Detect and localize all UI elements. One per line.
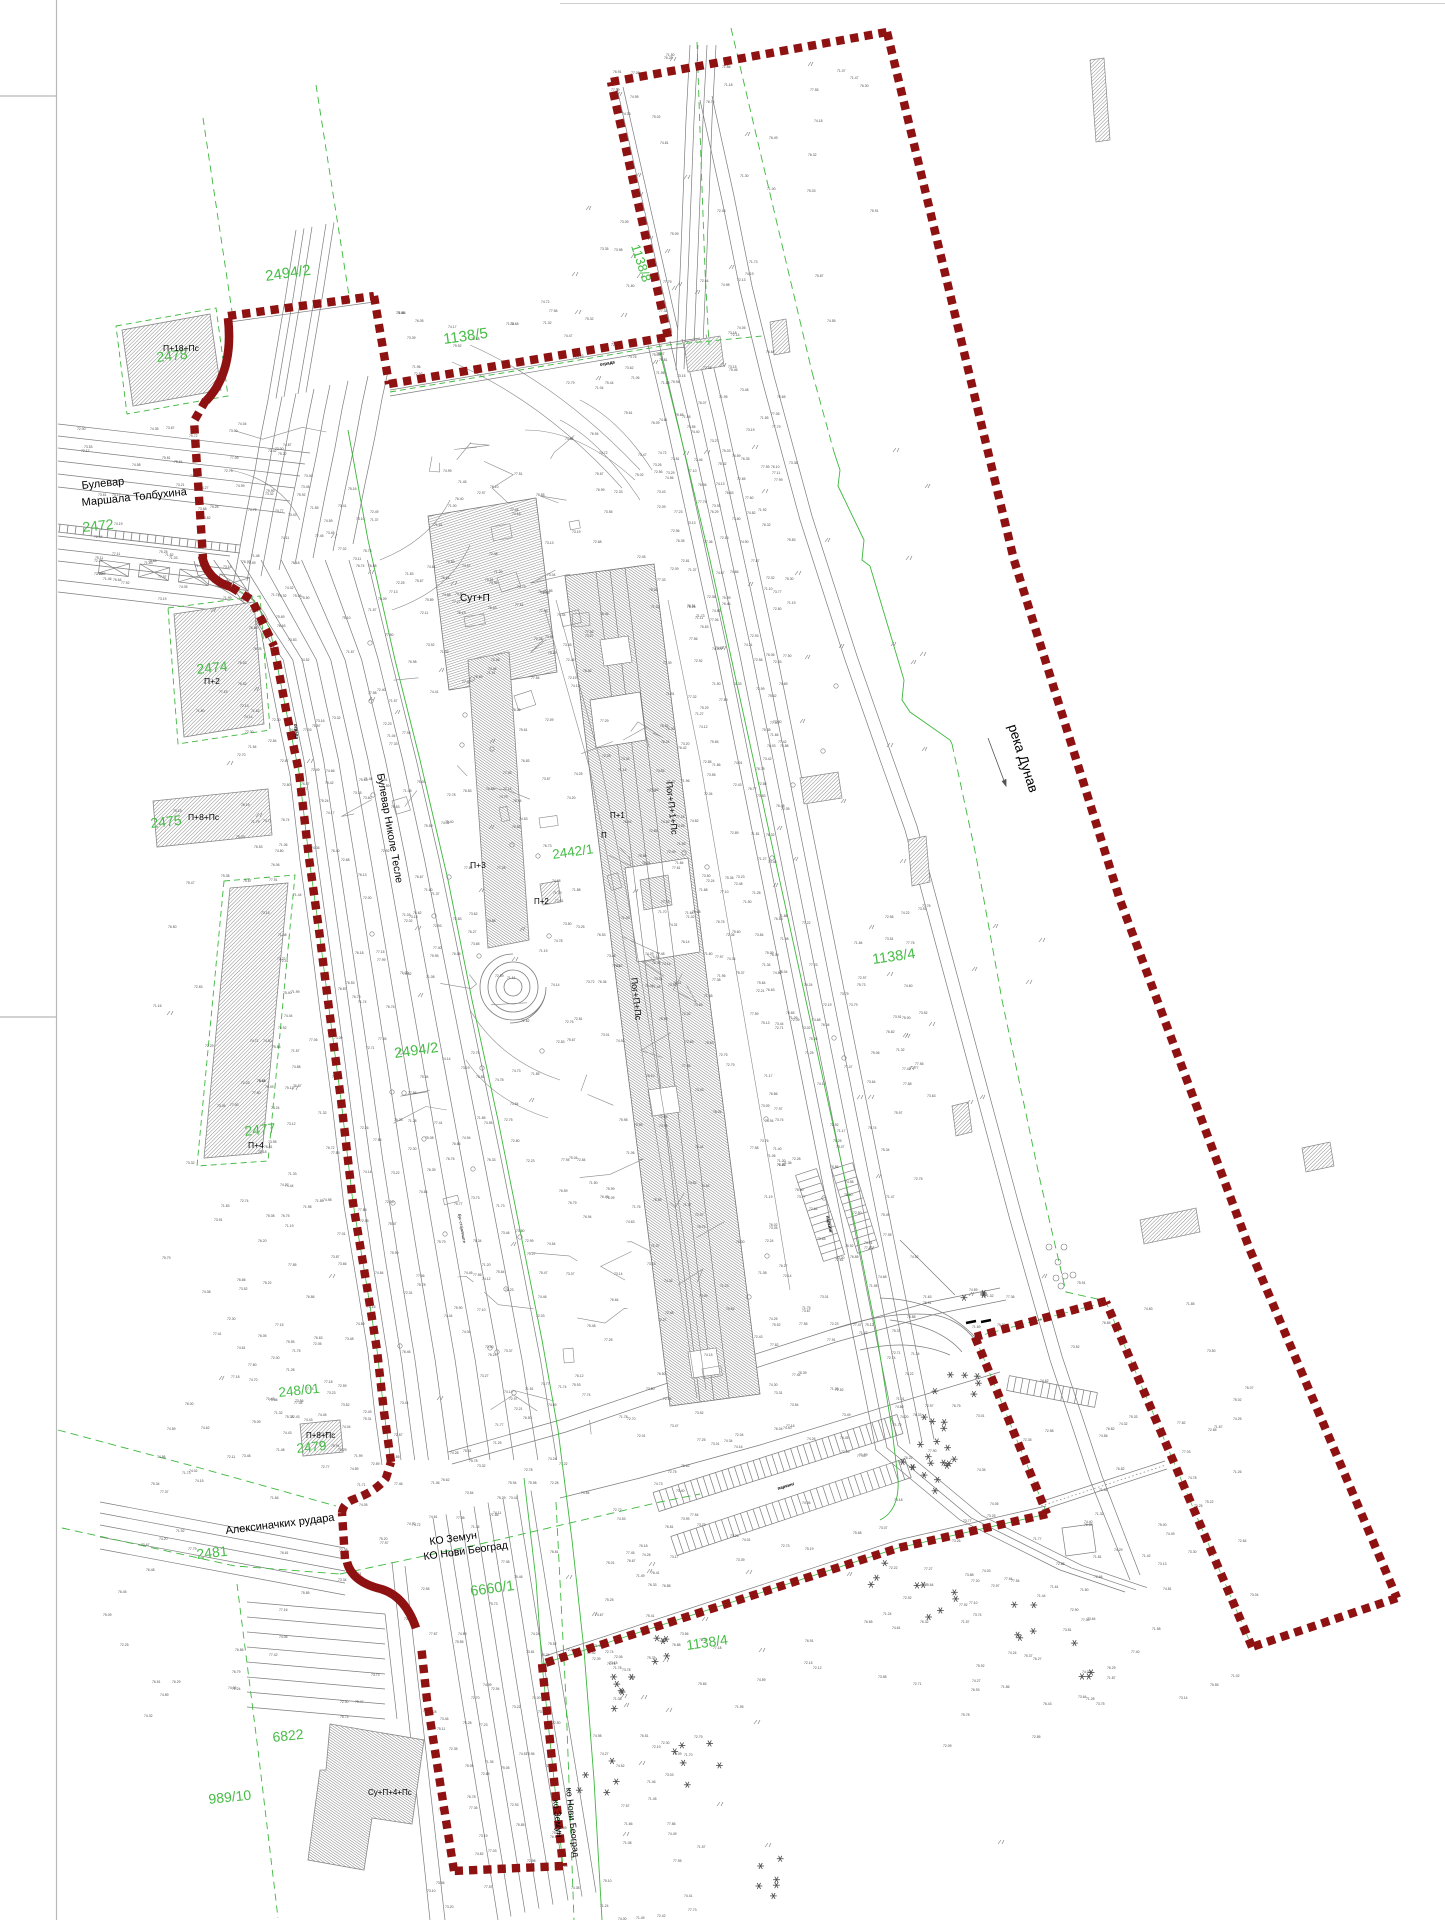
svg-text:71.95: 71.95 (735, 1705, 744, 1709)
svg-text:75.78: 75.78 (961, 1713, 970, 1717)
svg-text:74.99: 74.99 (483, 1683, 492, 1687)
svg-text:77.52: 77.52 (585, 630, 594, 634)
svg-text:77.97: 77.97 (158, 575, 167, 579)
svg-text:76.05: 76.05 (512, 708, 521, 712)
svg-text:71.85: 71.85 (315, 1199, 324, 1203)
svg-text:73.73: 73.73 (371, 1673, 380, 1677)
svg-text:72.30: 72.30 (661, 1741, 670, 1745)
svg-text:76.64: 76.64 (610, 1298, 619, 1302)
svg-text:71.06: 71.06 (279, 843, 288, 847)
svg-text:74.67: 74.67 (716, 571, 725, 575)
svg-text:76.72: 76.72 (326, 1146, 335, 1150)
svg-text:76.35: 76.35 (741, 457, 750, 461)
svg-text:Сут+П: Сут+П (460, 593, 490, 604)
svg-text:75.16: 75.16 (348, 487, 357, 491)
svg-text:71.40: 71.40 (773, 1147, 782, 1151)
svg-text:74.58: 74.58 (132, 463, 141, 467)
svg-text:72.25: 72.25 (396, 581, 405, 585)
svg-text:75.19: 75.19 (805, 1547, 814, 1551)
svg-text:75.61: 75.61 (519, 728, 528, 732)
svg-text:74.04: 74.04 (238, 422, 247, 426)
svg-text:72.71: 72.71 (913, 1682, 922, 1686)
svg-text:75.47: 75.47 (186, 881, 195, 885)
svg-text:72.70: 72.70 (471, 1696, 480, 1700)
svg-text:75.64: 75.64 (496, 1270, 505, 1274)
svg-text:72.05: 72.05 (781, 807, 790, 811)
svg-text:77.92: 77.92 (121, 581, 130, 585)
svg-text:74.56: 74.56 (712, 609, 721, 613)
svg-text:75.57: 75.57 (312, 724, 321, 728)
svg-text:75.78: 75.78 (417, 1283, 426, 1287)
svg-text:73.27: 73.27 (480, 1374, 489, 1378)
svg-text:74.01: 74.01 (734, 761, 743, 765)
svg-text:72.97: 72.97 (509, 1397, 518, 1401)
svg-text:2479: 2479 (296, 1438, 327, 1456)
svg-text:74.49: 74.49 (1166, 1532, 1175, 1536)
svg-text:71.85: 71.85 (1186, 1302, 1195, 1306)
svg-text:74.66: 74.66 (326, 769, 335, 773)
svg-text:76.32: 76.32 (808, 153, 817, 157)
svg-text:77.44: 77.44 (510, 508, 519, 512)
svg-text:77.57: 77.57 (484, 1885, 493, 1889)
svg-text:71.32: 71.32 (318, 1111, 327, 1115)
svg-text:73.88: 73.88 (965, 1573, 974, 1577)
svg-text:76.63: 76.63 (766, 988, 775, 992)
svg-text:76.59: 76.59 (559, 1189, 568, 1193)
svg-text:73.31: 73.31 (654, 977, 663, 981)
svg-text:76.53: 76.53 (346, 981, 355, 985)
svg-text:72.84: 72.84 (577, 1158, 586, 1162)
svg-text:74.45: 74.45 (464, 1271, 473, 1275)
svg-text:71.05: 71.05 (403, 789, 412, 793)
svg-text:2474: 2474 (196, 658, 229, 677)
svg-text:71.19: 71.19 (764, 1195, 773, 1199)
svg-text:75.47: 75.47 (539, 1271, 548, 1275)
svg-text:75.52: 75.52 (548, 1642, 557, 1646)
svg-text:76.49: 76.49 (265, 1085, 274, 1089)
svg-text:72.56: 72.56 (885, 915, 894, 919)
svg-text:77.58: 77.58 (368, 691, 377, 695)
svg-text:74.80: 74.80 (275, 849, 284, 853)
svg-text:77.45: 77.45 (503, 771, 512, 775)
svg-text:77.86: 77.86 (408, 1091, 417, 1095)
svg-text:73.47: 73.47 (670, 1424, 679, 1428)
svg-text:72.42: 72.42 (657, 1914, 666, 1918)
svg-text:76.81: 76.81 (550, 1550, 559, 1554)
svg-text:71.32: 71.32 (651, 605, 660, 609)
svg-text:71.75: 71.75 (292, 1349, 301, 1353)
svg-text:73.45: 73.45 (301, 485, 310, 489)
svg-text:73.45: 73.45 (326, 531, 335, 535)
svg-text:75.85: 75.85 (301, 1591, 310, 1595)
svg-text:76.56: 76.56 (698, 483, 707, 487)
svg-text:73.13: 73.13 (687, 521, 696, 525)
svg-text:71.85: 71.85 (531, 1072, 540, 1076)
svg-text:77.91: 77.91 (269, 878, 278, 882)
svg-text:77.80: 77.80 (252, 1091, 261, 1095)
svg-text:72.21: 72.21 (756, 989, 765, 993)
svg-text:71.50: 71.50 (712, 682, 721, 686)
svg-text:77.44: 77.44 (792, 1373, 801, 1377)
svg-text:76.32: 76.32 (920, 1620, 929, 1624)
svg-text:74.72: 74.72 (599, 451, 608, 455)
svg-text:72.81: 72.81 (574, 1017, 583, 1021)
svg-text:73.47: 73.47 (638, 453, 647, 457)
svg-text:77.94: 77.94 (561, 1158, 570, 1162)
svg-text:75.30: 75.30 (666, 727, 675, 731)
svg-text:74.56: 74.56 (1099, 1434, 1108, 1438)
svg-text:74.32: 74.32 (664, 1279, 673, 1283)
svg-text:72.90: 72.90 (340, 1700, 349, 1704)
svg-text:76.24: 76.24 (541, 1653, 550, 1657)
svg-text:71.17: 71.17 (764, 1074, 773, 1078)
svg-text:73.93: 73.93 (712, 504, 721, 508)
svg-text:77.93: 77.93 (402, 731, 411, 735)
svg-text:71.50: 71.50 (743, 900, 752, 904)
svg-text:74.53: 74.53 (519, 817, 528, 821)
svg-text:74.75: 74.75 (248, 508, 257, 512)
svg-text:77.95: 77.95 (539, 609, 548, 613)
svg-text:72.59: 72.59 (338, 1384, 347, 1388)
svg-text:73.16: 73.16 (223, 565, 232, 569)
svg-text:74.87: 74.87 (283, 443, 292, 447)
svg-text:74.12: 74.12 (699, 725, 708, 729)
svg-text:71.88: 71.88 (572, 888, 581, 892)
svg-text:72.39: 72.39 (592, 1657, 601, 1661)
svg-text:72.09: 72.09 (943, 1744, 952, 1748)
svg-text:72.23: 72.23 (526, 1159, 535, 1163)
svg-text:77.23: 77.23 (674, 510, 683, 514)
svg-text:71.32: 71.32 (1095, 1512, 1104, 1516)
svg-text:77.11: 77.11 (112, 552, 120, 556)
svg-text:73.64: 73.64 (867, 1080, 876, 1084)
svg-text:77.11: 77.11 (772, 471, 780, 475)
svg-text:76.18: 76.18 (291, 561, 300, 565)
svg-text:74.47: 74.47 (564, 334, 573, 338)
svg-text:76.07: 76.07 (698, 401, 707, 405)
svg-text:76.05: 76.05 (253, 647, 262, 651)
svg-text:72.00: 72.00 (77, 427, 86, 431)
svg-text:76.24: 76.24 (661, 740, 670, 744)
svg-text:71.08: 71.08 (426, 975, 435, 979)
svg-text:73.13: 73.13 (647, 1262, 656, 1266)
svg-text:75.08: 75.08 (266, 1214, 275, 1218)
svg-text:74.58: 74.58 (442, 593, 451, 597)
svg-text:71.64: 71.64 (685, 911, 694, 915)
svg-text:71.93: 71.93 (677, 842, 686, 846)
svg-text:72.31: 72.31 (404, 1291, 413, 1295)
svg-text:76.41: 76.41 (642, 861, 651, 865)
svg-text:77.46: 77.46 (682, 1064, 691, 1068)
svg-text:75.09: 75.09 (670, 232, 679, 236)
svg-text:75.65: 75.65 (710, 740, 719, 744)
svg-text:74.21: 74.21 (744, 643, 753, 647)
svg-text:73.52: 73.52 (1071, 1345, 1080, 1349)
svg-text:73.46: 73.46 (768, 860, 777, 864)
svg-text:76.03: 76.03 (238, 661, 247, 665)
svg-text:75.67: 75.67 (415, 579, 424, 583)
svg-text:72.25: 72.25 (120, 1643, 129, 1647)
svg-text:71.46: 71.46 (647, 1780, 656, 1784)
svg-text:74.05: 74.05 (737, 326, 746, 330)
svg-text:75.63: 75.63 (705, 1041, 714, 1045)
svg-text:77.36: 77.36 (704, 540, 713, 544)
svg-text:74.98: 74.98 (659, 1124, 668, 1128)
svg-text:73.87: 73.87 (331, 1255, 340, 1259)
svg-text:73.62: 73.62 (469, 912, 478, 916)
svg-text:74.92: 74.92 (616, 1039, 625, 1043)
svg-text:74.59: 74.59 (324, 519, 333, 523)
svg-text:72.43: 72.43 (291, 1415, 300, 1419)
svg-text:74.01: 74.01 (742, 1538, 751, 1542)
svg-text:71.44: 71.44 (293, 893, 302, 897)
svg-text:71.58: 71.58 (1152, 1627, 1161, 1631)
svg-text:73.31: 73.31 (774, 1391, 783, 1395)
svg-text:73.41: 73.41 (509, 1496, 518, 1500)
svg-text:76.03: 76.03 (767, 744, 776, 748)
svg-text:75.26: 75.26 (809, 1037, 818, 1041)
svg-text:71.96: 71.96 (717, 974, 726, 978)
svg-text:71.99: 71.99 (859, 1453, 868, 1457)
svg-text:76.27: 76.27 (779, 1264, 788, 1268)
svg-text:71.66: 71.66 (624, 1822, 633, 1826)
svg-text:77.28: 77.28 (497, 866, 506, 870)
svg-text:Су+П+4+Пс: Су+П+4+Пс (368, 1788, 412, 1797)
svg-text:73.25: 73.25 (576, 925, 585, 929)
svg-text:72.73: 72.73 (224, 469, 233, 473)
svg-text:72.65: 72.65 (663, 1397, 672, 1401)
svg-text:72.11: 72.11 (227, 1455, 235, 1459)
svg-text:71.28: 71.28 (752, 891, 761, 895)
svg-text:74.49: 74.49 (668, 1832, 677, 1836)
svg-text:76.29: 76.29 (1107, 1666, 1116, 1670)
svg-text:73.07: 73.07 (879, 1526, 888, 1530)
svg-text:72.62: 72.62 (521, 1019, 530, 1023)
svg-text:76.65: 76.65 (864, 1620, 873, 1624)
svg-text:75.03: 75.03 (722, 449, 731, 453)
svg-text:73.26: 73.26 (653, 463, 662, 467)
svg-text:71.37: 71.37 (370, 518, 379, 522)
svg-text:74.88: 74.88 (780, 744, 789, 748)
svg-text:76.83: 76.83 (521, 759, 530, 763)
svg-text:72.78: 72.78 (447, 793, 456, 797)
svg-text:71.22: 71.22 (905, 1372, 914, 1376)
svg-text:74.80: 74.80 (263, 1039, 272, 1043)
svg-text:75.81: 75.81 (659, 358, 668, 362)
svg-text:77.87: 77.87 (429, 1632, 438, 1636)
svg-text:73.11: 73.11 (353, 557, 361, 561)
svg-text:75.60: 75.60 (844, 1193, 853, 1197)
svg-text:72.46: 72.46 (566, 658, 575, 662)
svg-text:6822: 6822 (272, 1726, 305, 1745)
svg-text:75.55: 75.55 (1210, 1683, 1219, 1687)
svg-text:74.61: 74.61 (659, 418, 668, 422)
svg-text:77.25: 77.25 (697, 1438, 706, 1442)
svg-text:74.82: 74.82 (475, 1852, 484, 1856)
svg-text:72.49: 72.49 (247, 561, 256, 565)
svg-text:76.62: 76.62 (681, 1464, 690, 1468)
svg-text:71.98: 71.98 (869, 1284, 878, 1288)
svg-text:71.48: 71.48 (364, 777, 373, 781)
svg-text:76.61: 76.61 (280, 1551, 289, 1555)
svg-text:75.60: 75.60 (732, 930, 741, 934)
svg-text:73.65: 73.65 (471, 942, 480, 946)
svg-text:77.40: 77.40 (433, 946, 442, 950)
svg-text:74.89: 74.89 (458, 1632, 467, 1636)
svg-text:72.96: 72.96 (671, 529, 680, 533)
svg-text:77.65: 77.65 (378, 1037, 387, 1041)
svg-text:76.09: 76.09 (606, 1196, 615, 1200)
svg-text:71.26: 71.26 (1233, 1470, 1242, 1474)
svg-text:77.15: 77.15 (219, 690, 228, 694)
svg-text:72.59: 72.59 (495, 974, 504, 978)
svg-text:71.48: 71.48 (251, 554, 260, 558)
svg-text:76.52: 76.52 (583, 669, 592, 673)
svg-text:75.00: 75.00 (902, 1016, 911, 1020)
svg-text:72.74: 72.74 (605, 1650, 614, 1654)
svg-text:76.79: 76.79 (568, 1201, 577, 1205)
svg-text:П+8+Пс: П+8+Пс (306, 1431, 335, 1440)
svg-text:77.45: 77.45 (315, 534, 324, 538)
svg-text:75.20: 75.20 (379, 1537, 388, 1541)
svg-text:74.44: 74.44 (444, 1314, 453, 1318)
svg-text:73.42: 73.42 (763, 757, 772, 761)
svg-text:74.08: 74.08 (202, 1290, 211, 1294)
svg-text:73.52: 73.52 (656, 769, 665, 773)
svg-text:76.48: 76.48 (146, 1568, 155, 1572)
svg-text:76.52: 76.52 (238, 682, 247, 686)
svg-text:71.81: 71.81 (1093, 1555, 1102, 1559)
svg-text:76.86: 76.86 (235, 1648, 244, 1652)
svg-text:72.23: 72.23 (241, 1081, 250, 1085)
svg-text:73.78: 73.78 (622, 1668, 631, 1672)
svg-text:71.37: 71.37 (431, 892, 440, 896)
svg-text:76.27: 76.27 (1033, 1657, 1042, 1661)
svg-text:75.75: 75.75 (340, 1715, 349, 1719)
svg-text:71.42: 71.42 (1142, 1554, 1151, 1558)
svg-text:74.73: 74.73 (512, 1069, 521, 1073)
svg-text:75.49: 75.49 (881, 1213, 890, 1217)
svg-text:72.55: 72.55 (360, 1219, 369, 1223)
svg-text:75.22: 75.22 (278, 452, 287, 456)
svg-text:72.30: 72.30 (227, 1317, 236, 1321)
svg-text:74.68: 74.68 (552, 879, 561, 883)
svg-text:77.01: 77.01 (337, 1232, 346, 1236)
svg-text:76.67: 76.67 (415, 875, 424, 879)
svg-text:74.72: 74.72 (541, 300, 550, 304)
svg-text:73.15: 73.15 (677, 374, 686, 378)
svg-text:72.62: 72.62 (809, 1207, 818, 1211)
svg-text:72.15: 72.15 (804, 1661, 813, 1665)
svg-text:75.98: 75.98 (528, 1481, 537, 1485)
svg-text:77.50: 77.50 (783, 654, 792, 658)
svg-text:76.86: 76.86 (769, 1092, 778, 1096)
svg-text:75.90: 75.90 (454, 1306, 463, 1310)
svg-text:72.44: 72.44 (94, 535, 103, 539)
svg-text:72.84: 72.84 (268, 739, 277, 743)
svg-text:74.94: 74.94 (462, 1136, 471, 1140)
svg-text:73.27: 73.27 (710, 439, 719, 443)
svg-text:71.98: 71.98 (780, 937, 789, 941)
svg-text:74.71: 74.71 (263, 819, 272, 823)
svg-text:72.27: 72.27 (658, 1318, 667, 1322)
svg-text:75.31: 75.31 (363, 1417, 372, 1421)
svg-text:74.69: 74.69 (779, 682, 788, 686)
svg-text:73.14: 73.14 (1179, 1696, 1188, 1700)
svg-text:77.54: 77.54 (690, 1513, 699, 1517)
svg-text:72.49: 72.49 (667, 850, 676, 854)
svg-text:74.82: 74.82 (747, 511, 756, 515)
svg-text:76.91: 76.91 (613, 70, 622, 74)
svg-text:77.98: 77.98 (456, 1516, 465, 1520)
svg-text:72.36: 72.36 (707, 595, 716, 599)
svg-text:74.66: 74.66 (730, 570, 739, 574)
svg-text:75.90: 75.90 (390, 1251, 399, 1255)
svg-text:77.32: 77.32 (688, 695, 697, 699)
svg-text:77.03: 77.03 (1182, 1450, 1191, 1454)
svg-text:75.37: 75.37 (736, 971, 745, 975)
svg-text:71.77: 71.77 (541, 1382, 550, 1386)
svg-text:76.21: 76.21 (673, 981, 682, 985)
svg-text:75.91: 75.91 (1077, 1281, 1086, 1285)
svg-text:71.79: 71.79 (553, 891, 562, 895)
svg-text:74.20: 74.20 (900, 1415, 909, 1419)
svg-text:73.04: 73.04 (1250, 1593, 1259, 1597)
svg-text:77.89: 77.89 (719, 698, 728, 702)
svg-text:76.73: 76.73 (543, 844, 552, 848)
svg-text:74.14: 74.14 (662, 962, 671, 966)
svg-text:74.15: 74.15 (704, 1353, 713, 1357)
svg-text:75.59: 75.59 (424, 824, 433, 828)
svg-text:72.94: 72.94 (491, 1687, 500, 1691)
svg-text:73.34: 73.34 (338, 1578, 347, 1582)
svg-text:75.09: 75.09 (252, 1420, 261, 1424)
svg-text:71.82: 71.82 (165, 553, 174, 557)
svg-text:73.34: 73.34 (621, 757, 630, 761)
svg-text:77.54: 77.54 (531, 676, 540, 680)
svg-text:75.55: 75.55 (536, 493, 545, 497)
svg-text:71.18: 71.18 (724, 83, 733, 87)
svg-text:77.02: 77.02 (338, 547, 347, 551)
svg-text:74.14: 74.14 (551, 983, 560, 987)
svg-text:П+3: П+3 (470, 860, 486, 870)
svg-text:74.44: 74.44 (695, 1145, 704, 1149)
svg-text:75.02: 75.02 (652, 115, 661, 119)
svg-text:71.92: 71.92 (758, 508, 767, 512)
svg-text:73.23: 73.23 (736, 875, 745, 879)
svg-text:72.83: 72.83 (194, 985, 203, 989)
svg-text:74.14: 74.14 (504, 1390, 513, 1394)
svg-text:76.82: 76.82 (1116, 1467, 1125, 1471)
svg-text:76.29: 76.29 (710, 510, 719, 514)
svg-text:73.83: 73.83 (288, 638, 297, 642)
svg-text:72.30: 72.30 (272, 718, 281, 722)
svg-text:75.40: 75.40 (445, 820, 454, 824)
svg-text:74.72: 74.72 (412, 1523, 421, 1527)
svg-text:74.04: 74.04 (284, 1014, 293, 1018)
svg-text:74.41: 74.41 (430, 690, 439, 694)
svg-text:71.78: 71.78 (613, 1666, 622, 1670)
svg-text:73.57: 73.57 (542, 777, 551, 781)
svg-text:76.77: 76.77 (748, 787, 757, 791)
svg-text:72.23: 72.23 (383, 722, 392, 726)
svg-text:72.17: 72.17 (81, 449, 90, 453)
svg-text:77.15: 77.15 (275, 1323, 284, 1327)
svg-text:75.06: 75.06 (871, 1051, 880, 1055)
svg-text:74.59: 74.59 (167, 1427, 176, 1431)
svg-text:73.80: 73.80 (732, 517, 741, 521)
svg-text:73.26: 73.26 (730, 1534, 739, 1538)
